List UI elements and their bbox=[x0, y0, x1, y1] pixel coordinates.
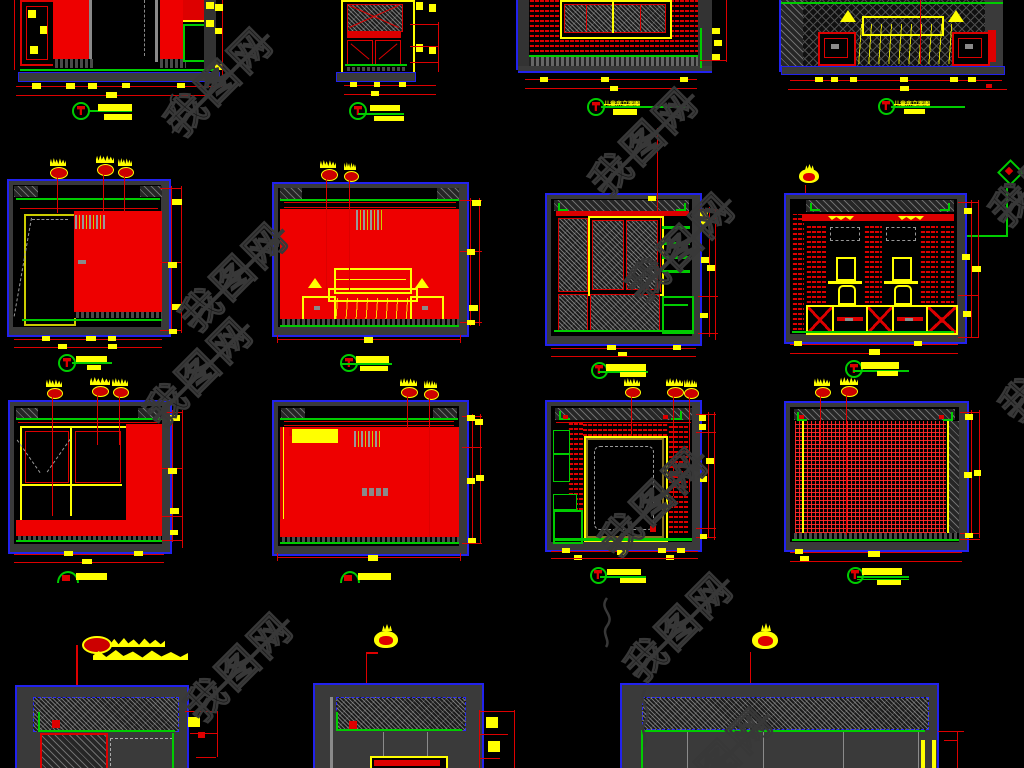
dim-text bbox=[972, 266, 981, 272]
dim-line bbox=[480, 758, 500, 759]
label-scale-block bbox=[374, 116, 404, 121]
label-scale-block bbox=[877, 580, 901, 585]
red-wall-band bbox=[16, 520, 162, 536]
base-strip bbox=[158, 59, 186, 68]
label-title: 儿童房立面图 bbox=[894, 99, 936, 106]
cornice-line bbox=[284, 202, 456, 203]
dim-text bbox=[617, 550, 626, 555]
window-transom bbox=[22, 484, 122, 486]
wall-column bbox=[518, 0, 529, 67]
red-panel bbox=[183, 0, 204, 22]
label-underline bbox=[358, 113, 404, 115]
dim-line bbox=[162, 412, 182, 413]
dim-text bbox=[467, 249, 475, 255]
callout-head bbox=[82, 636, 112, 654]
dim-text bbox=[472, 200, 481, 206]
shelf bbox=[662, 242, 690, 245]
dim-line bbox=[696, 528, 716, 529]
door-leaf-dashed bbox=[594, 446, 654, 530]
label-underline bbox=[72, 362, 112, 364]
callout-text-block bbox=[46, 379, 62, 387]
green-cabinet bbox=[662, 296, 694, 334]
window bbox=[560, 0, 672, 39]
dim-text bbox=[350, 82, 357, 87]
lamp-callout bbox=[374, 624, 400, 652]
callout-head bbox=[47, 388, 63, 399]
elevation-label bbox=[591, 362, 651, 382]
dim-line bbox=[182, 410, 183, 548]
wardrobe-door bbox=[558, 218, 588, 292]
dim-line bbox=[958, 337, 978, 338]
leader-line bbox=[631, 396, 632, 436]
dim-line bbox=[462, 543, 482, 544]
callout-text-block bbox=[50, 158, 66, 166]
dim-text bbox=[215, 28, 222, 34]
callout-text-block bbox=[400, 378, 417, 386]
leader-line bbox=[366, 652, 378, 654]
section-label bbox=[340, 571, 400, 585]
dim-line bbox=[185, 711, 218, 712]
dim-text bbox=[172, 304, 181, 310]
red-mark bbox=[198, 732, 205, 738]
crown-line bbox=[18, 422, 158, 423]
leader-line bbox=[820, 396, 821, 444]
green-line bbox=[700, 28, 702, 68]
hanger-line bbox=[918, 732, 919, 768]
leader-line bbox=[52, 397, 53, 516]
wall-line bbox=[330, 697, 333, 768]
label-title-block bbox=[862, 568, 902, 575]
red-mark bbox=[939, 415, 944, 419]
dim-text bbox=[965, 414, 973, 420]
centerline bbox=[920, 0, 921, 64]
dim-end bbox=[277, 335, 278, 343]
ceiling-hook bbox=[810, 203, 820, 211]
section-symbol-core bbox=[62, 575, 70, 581]
callout-head bbox=[118, 167, 134, 178]
dim-text bbox=[169, 329, 177, 334]
callout-head bbox=[841, 386, 858, 397]
panel-inner bbox=[26, 6, 48, 60]
dim-text bbox=[172, 199, 182, 205]
drawer-knob bbox=[905, 318, 913, 321]
door-rail bbox=[347, 32, 401, 38]
cad-model-space: 儿童房立面图 儿童房立面图 bbox=[0, 0, 1024, 768]
wallpaper-wall-elevation bbox=[784, 401, 969, 552]
dim-end bbox=[460, 335, 461, 343]
dim-text bbox=[610, 86, 618, 91]
floor-line bbox=[792, 539, 959, 541]
dim-text bbox=[206, 20, 214, 27]
niche-dashed-top bbox=[886, 227, 916, 241]
leader-line-green bbox=[1006, 188, 1008, 237]
floor-line bbox=[792, 331, 954, 333]
shelf bbox=[662, 270, 690, 273]
callout-text-block bbox=[118, 158, 132, 166]
dim-text bbox=[963, 311, 971, 317]
dim-text bbox=[562, 548, 570, 553]
leader-line bbox=[429, 397, 430, 537]
dim-text bbox=[168, 468, 177, 474]
dim-line bbox=[344, 94, 436, 95]
dim-line bbox=[957, 731, 958, 768]
dim-text bbox=[699, 424, 706, 430]
ceiling-hatch bbox=[140, 186, 162, 197]
beam-section bbox=[40, 733, 108, 768]
dim-mark bbox=[986, 84, 992, 88]
shelf bbox=[662, 256, 690, 259]
leader-line bbox=[689, 396, 690, 492]
dim-text bbox=[188, 717, 200, 727]
callout-text-block bbox=[814, 378, 830, 386]
dim-line bbox=[958, 202, 978, 203]
lamp-knob bbox=[382, 624, 392, 631]
dim-line bbox=[514, 710, 515, 768]
dim-text bbox=[601, 77, 609, 82]
window-wall-elevation bbox=[8, 400, 172, 554]
green-profile bbox=[641, 730, 643, 768]
green-profile bbox=[643, 730, 925, 732]
brick-column bbox=[792, 214, 804, 330]
dim-line bbox=[160, 188, 182, 189]
dim-text bbox=[962, 254, 970, 260]
baseboard bbox=[74, 312, 162, 318]
callout-head bbox=[92, 386, 109, 397]
dim-end bbox=[460, 553, 461, 561]
lamp-knob bbox=[761, 623, 771, 631]
picture-hook bbox=[289, 429, 292, 436]
floor-slab bbox=[336, 72, 416, 82]
side-panel bbox=[949, 421, 959, 533]
dim-text bbox=[82, 559, 92, 564]
trim-strip bbox=[89, 0, 92, 60]
label-title-block bbox=[76, 356, 107, 362]
ceiling-hatch bbox=[554, 200, 689, 211]
callout-text-block bbox=[666, 378, 683, 386]
red-mark bbox=[563, 415, 568, 419]
dim-line bbox=[438, 22, 439, 72]
dim-line bbox=[790, 344, 958, 345]
label-underline bbox=[891, 106, 965, 108]
lamp-core bbox=[803, 173, 815, 181]
callout-text-block bbox=[320, 160, 336, 168]
dim-text bbox=[168, 262, 177, 268]
dim-line bbox=[217, 711, 218, 757]
wall-picture bbox=[292, 429, 338, 443]
callout-head bbox=[344, 171, 359, 182]
headboard-line bbox=[336, 279, 406, 280]
note-glyph-block bbox=[376, 488, 381, 496]
dim-text bbox=[88, 83, 97, 89]
dim-text bbox=[170, 530, 178, 535]
drawer-knob bbox=[314, 306, 320, 310]
base-strip bbox=[53, 59, 93, 68]
chair bbox=[894, 285, 912, 305]
label-scale-block bbox=[360, 366, 388, 371]
dim-text bbox=[540, 77, 548, 82]
chair bbox=[838, 285, 856, 305]
dim-line bbox=[790, 561, 962, 562]
floor-line bbox=[22, 319, 162, 321]
desk-monitor bbox=[892, 257, 912, 281]
dim-line bbox=[181, 186, 182, 333]
dim-text bbox=[868, 551, 880, 557]
dim-text bbox=[714, 40, 722, 46]
label-title-block bbox=[606, 364, 646, 371]
dim-text bbox=[658, 548, 666, 553]
elevation-label bbox=[340, 354, 400, 374]
dim-text bbox=[795, 549, 803, 554]
label-scale-block bbox=[904, 109, 925, 114]
dim-line bbox=[480, 734, 508, 735]
light-cove bbox=[370, 756, 448, 768]
red-wall-panel bbox=[160, 0, 183, 60]
ceiling-hook bbox=[943, 412, 953, 421]
niche-dashed-top bbox=[830, 227, 860, 241]
dim-line bbox=[960, 412, 980, 413]
cove-lamp-band bbox=[374, 760, 440, 766]
dim-text bbox=[42, 336, 50, 341]
callout-text-block bbox=[344, 162, 356, 170]
door-elevation bbox=[341, 0, 415, 76]
note-glyph-block bbox=[369, 488, 374, 496]
callout-head bbox=[684, 388, 699, 399]
dim-text bbox=[707, 265, 715, 271]
wall-note-text bbox=[78, 260, 86, 264]
dim-line bbox=[698, 296, 718, 297]
trim-line bbox=[802, 421, 804, 533]
dim-line bbox=[344, 85, 436, 86]
entry-door-wall-elevation bbox=[7, 179, 171, 337]
label-scale-block bbox=[104, 114, 132, 120]
green-profile bbox=[336, 729, 462, 731]
plain-red-wall-elevation bbox=[272, 400, 469, 556]
dim-line bbox=[938, 731, 964, 732]
green-profile bbox=[38, 712, 40, 732]
wardrobe-door bbox=[592, 220, 624, 290]
floor-line bbox=[553, 538, 692, 541]
dim-text bbox=[794, 341, 802, 346]
dim-text bbox=[850, 77, 857, 82]
callout-text-block bbox=[112, 378, 128, 386]
ceiling-hatch bbox=[794, 409, 955, 420]
dim-text bbox=[215, 4, 223, 11]
callout-head bbox=[625, 387, 641, 398]
dim-text bbox=[673, 345, 681, 350]
nightstand bbox=[952, 32, 990, 66]
threshold-line bbox=[345, 64, 407, 66]
drawer-knob bbox=[965, 44, 973, 49]
dim-line bbox=[551, 356, 696, 357]
watermark-flame-logo bbox=[592, 596, 622, 652]
red-wall bbox=[126, 424, 162, 520]
dim-line bbox=[700, 60, 726, 61]
bookshelf-column bbox=[806, 223, 826, 303]
dim-text bbox=[900, 77, 908, 82]
elevation-label: 儿童房立面图 bbox=[878, 98, 988, 116]
drawer-knob bbox=[831, 44, 839, 49]
elevation-label bbox=[58, 354, 118, 374]
ceiling-hatch bbox=[16, 408, 38, 418]
dim-text bbox=[66, 83, 75, 89]
dim-text bbox=[429, 46, 436, 54]
dim-text bbox=[429, 4, 436, 12]
pendant-light bbox=[75, 215, 105, 229]
dim-line bbox=[551, 558, 698, 559]
green-profile bbox=[38, 730, 175, 732]
dim-text bbox=[108, 336, 116, 341]
trim-strip bbox=[155, 0, 158, 62]
dim-line bbox=[479, 198, 480, 326]
dim-text bbox=[648, 196, 656, 201]
lamp-core bbox=[379, 636, 393, 645]
dim-text bbox=[32, 83, 41, 89]
leader-line bbox=[326, 179, 327, 291]
valance-swag bbox=[828, 216, 854, 220]
dim-text bbox=[680, 77, 688, 82]
dim-text bbox=[122, 83, 130, 88]
bed-skirt bbox=[328, 298, 414, 320]
leader-line bbox=[407, 396, 408, 429]
red-trim bbox=[988, 30, 996, 62]
ceiling-hook bbox=[558, 203, 568, 211]
ceiling-line bbox=[16, 418, 162, 420]
red-mark bbox=[663, 415, 668, 419]
dim-text bbox=[607, 345, 616, 350]
leader-line bbox=[103, 174, 104, 213]
dim-text bbox=[64, 551, 73, 556]
dim-text bbox=[968, 77, 976, 82]
dim-text bbox=[700, 476, 707, 482]
threshold bbox=[345, 67, 407, 71]
desk-top bbox=[828, 281, 862, 284]
dim-text bbox=[706, 458, 714, 464]
trim-line bbox=[183, 20, 204, 22]
dim-line bbox=[709, 207, 710, 337]
wardrobe-door bbox=[626, 220, 658, 290]
callout-head bbox=[97, 164, 114, 176]
note-glyph-block bbox=[383, 488, 388, 496]
label-title-block bbox=[358, 573, 391, 580]
shelf bbox=[662, 226, 690, 229]
green-shelf bbox=[553, 494, 577, 510]
dim-text bbox=[108, 344, 117, 349]
callout-head bbox=[113, 387, 129, 398]
dim-text bbox=[399, 82, 406, 87]
callout-text-block bbox=[96, 155, 114, 163]
divider-line bbox=[660, 218, 661, 292]
callout-head bbox=[667, 387, 684, 398]
dim-line bbox=[715, 207, 716, 340]
desk-top bbox=[884, 281, 918, 284]
dim-text bbox=[215, 64, 222, 70]
elevation-label bbox=[72, 102, 142, 124]
drawer-knob bbox=[845, 318, 853, 321]
dim-text bbox=[699, 415, 706, 421]
doorway bbox=[584, 436, 668, 542]
dim-text bbox=[712, 28, 720, 34]
doorway-wall-elevation bbox=[545, 400, 702, 552]
dim-text bbox=[371, 91, 379, 96]
dim-line bbox=[708, 412, 709, 538]
dim-text bbox=[170, 508, 179, 514]
ceiling-hook bbox=[940, 203, 950, 211]
valance-swag bbox=[898, 216, 924, 220]
floor-line bbox=[280, 325, 459, 327]
dim-text bbox=[106, 92, 117, 98]
wardrobe-drawer bbox=[558, 294, 588, 332]
ceiling-section-detail bbox=[313, 683, 484, 768]
dashed-profile bbox=[110, 738, 173, 768]
wardrobe-elevation bbox=[545, 193, 702, 346]
floor-slab bbox=[18, 72, 220, 82]
watermark-text: 我图网 bbox=[574, 71, 710, 207]
door-stop-mark bbox=[650, 526, 656, 532]
leader-line bbox=[57, 177, 58, 213]
wall-edge-trim bbox=[280, 427, 284, 519]
study-bookshelf-elevation bbox=[784, 193, 967, 344]
leader-line bbox=[119, 396, 120, 445]
dim-text bbox=[701, 257, 709, 263]
dim-line bbox=[162, 540, 182, 541]
dim-line bbox=[696, 432, 716, 433]
dim-line bbox=[788, 89, 1007, 90]
elevation-label: 儿童房立面图 bbox=[587, 98, 697, 116]
label-scale-block bbox=[613, 109, 637, 115]
ceiling-line bbox=[280, 199, 459, 201]
cornice-line bbox=[284, 207, 456, 208]
brick-wall bbox=[668, 423, 688, 533]
drawer-knob bbox=[422, 306, 428, 310]
dim-line bbox=[410, 62, 438, 63]
desk-niche bbox=[828, 223, 862, 303]
callout-head bbox=[815, 387, 831, 398]
callout-head bbox=[321, 169, 338, 181]
dim-line bbox=[726, 0, 727, 62]
ceiling-hatch-body bbox=[642, 697, 929, 730]
cornice bbox=[802, 214, 954, 221]
leader-line bbox=[657, 128, 658, 216]
red-mark bbox=[349, 721, 357, 729]
dim-text bbox=[900, 86, 909, 91]
dim-line bbox=[480, 711, 515, 712]
label-title-block bbox=[861, 362, 899, 369]
dim-text bbox=[467, 320, 475, 325]
red-mark bbox=[799, 415, 804, 419]
dim-line bbox=[960, 539, 980, 540]
dim-line bbox=[698, 209, 718, 210]
floor-line bbox=[280, 542, 459, 544]
dim-text bbox=[467, 478, 475, 484]
ceiling-line bbox=[781, 2, 1003, 4]
floor-slab bbox=[518, 66, 712, 73]
label-title-block bbox=[607, 569, 641, 575]
crown-line bbox=[20, 208, 158, 209]
window-frame-line bbox=[640, 4, 641, 31]
window-glass bbox=[564, 4, 666, 33]
callout-text-block bbox=[424, 380, 437, 388]
dim-text bbox=[469, 305, 478, 311]
ceiling-hatch bbox=[433, 408, 457, 418]
pendant-light bbox=[356, 210, 384, 230]
red-wall-panel bbox=[53, 0, 91, 60]
hanger-line bbox=[763, 732, 764, 768]
dim-text bbox=[964, 208, 972, 214]
label-title-block bbox=[370, 105, 400, 111]
ceiling-hatch bbox=[806, 200, 954, 212]
leader-line bbox=[97, 395, 98, 445]
nightstand bbox=[818, 32, 856, 66]
